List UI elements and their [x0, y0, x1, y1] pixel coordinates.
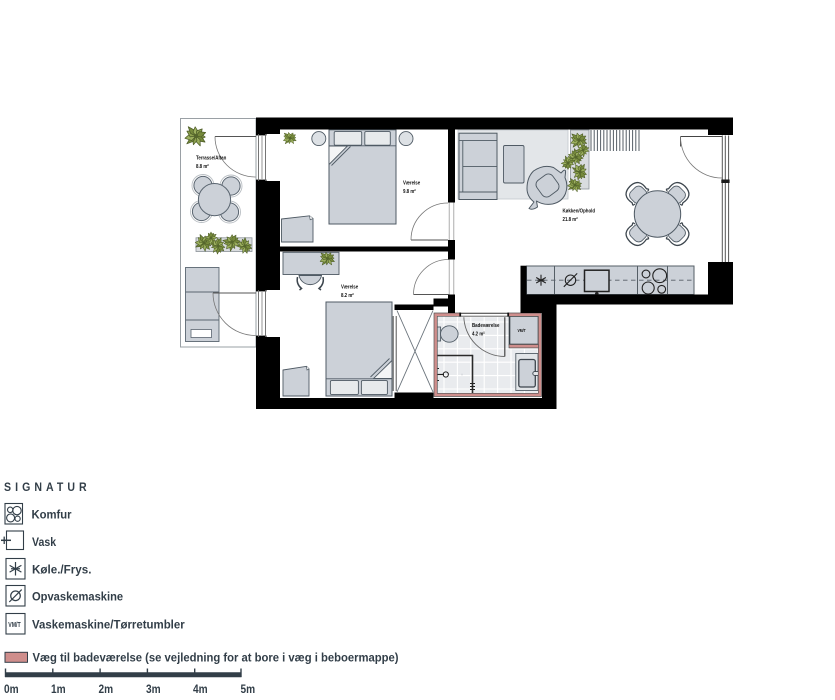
svg-text:2m: 2m	[99, 683, 114, 696]
svg-text:5m: 5m	[241, 683, 256, 696]
svg-text:4m: 4m	[193, 683, 208, 696]
svg-text:Værelse: Værelse	[403, 180, 420, 186]
svg-text:VM/T: VM/T	[8, 621, 21, 629]
svg-text:8.2 m²: 8.2 m²	[341, 293, 354, 299]
svg-text:Vask: Vask	[32, 536, 57, 549]
svg-text:Opvaskemaskine: Opvaskemaskine	[32, 591, 124, 603]
svg-text:VM/T: VM/T	[518, 328, 527, 334]
svg-text:4.2 m²: 4.2 m²	[472, 331, 485, 337]
svg-text:Værelse: Værelse	[341, 284, 358, 290]
svg-text:Komfur: Komfur	[32, 508, 72, 521]
svg-text:Badeværelse: Badeværelse	[472, 323, 500, 329]
svg-text:Vaskemaskine/Tørretumbler: Vaskemaskine/Tørretumbler	[32, 618, 185, 631]
svg-text:SIGNATUR: SIGNATUR	[4, 481, 91, 494]
svg-text:9.8 m²: 9.8 m²	[403, 189, 416, 195]
svg-text:Terrasse/Altan: Terrasse/Altan	[196, 155, 226, 161]
svg-text:21.8 m²: 21.8 m²	[563, 217, 579, 223]
svg-text:3m: 3m	[146, 683, 161, 696]
svg-text:Køle./Frys.: Køle./Frys.	[32, 562, 91, 576]
svg-text:Køkken/Ophold: Køkken/Ophold	[563, 208, 596, 214]
svg-text:8.8 m²: 8.8 m²	[196, 164, 209, 170]
svg-text:Væg til badeværelse (se vejled: Væg til badeværelse (se vejledning for a…	[33, 651, 399, 664]
svg-text:0m: 0m	[4, 683, 19, 696]
svg-text:1m: 1m	[51, 683, 66, 696]
